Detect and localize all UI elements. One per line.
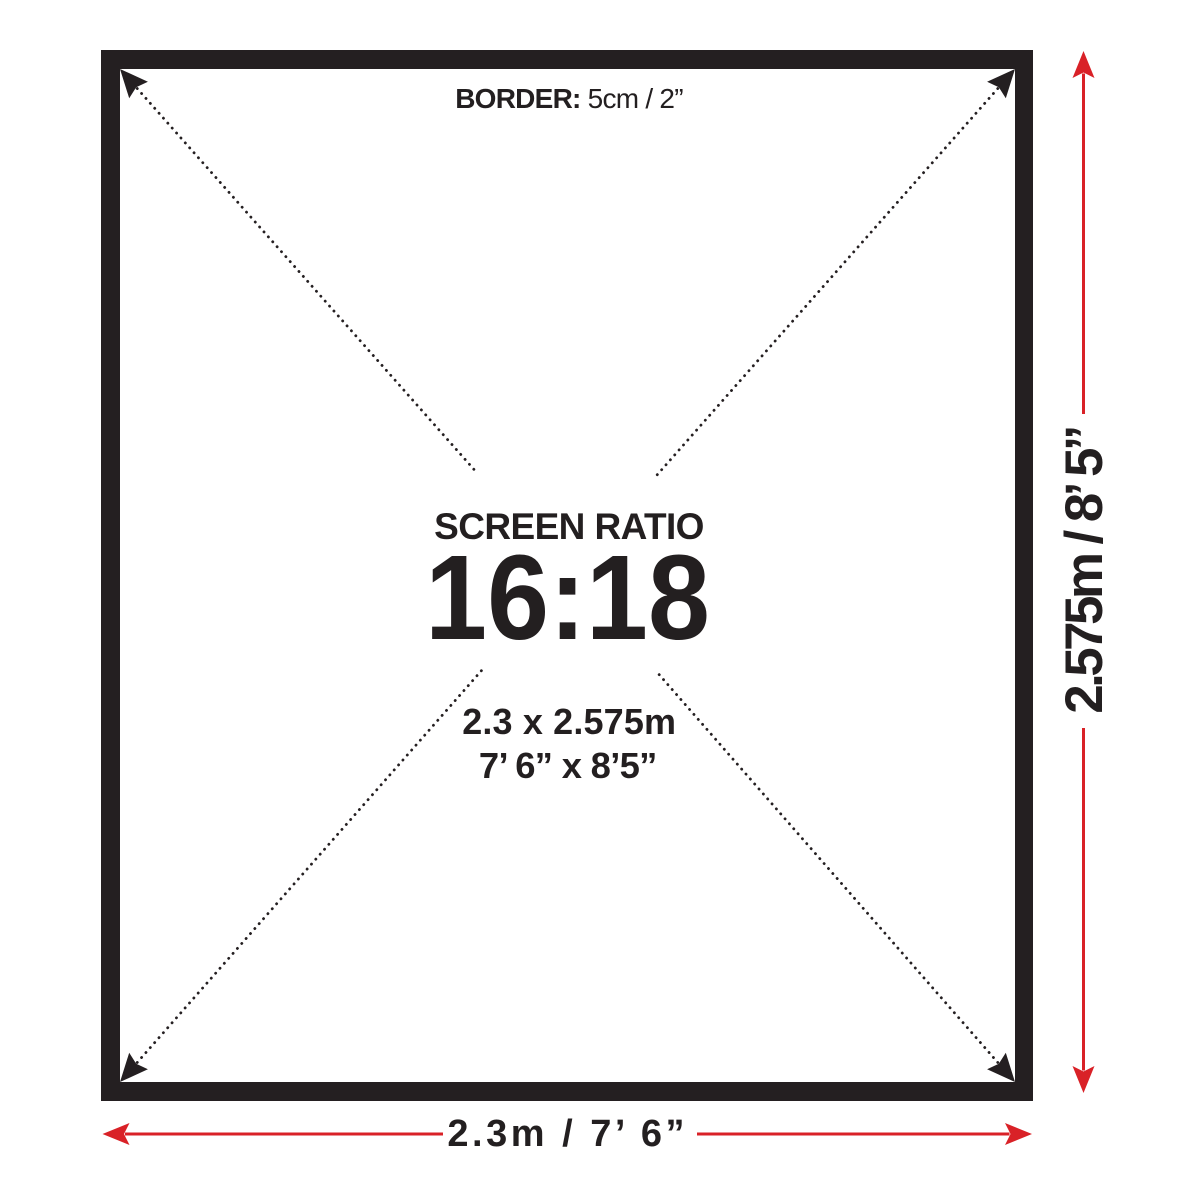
svg-text:2.575m / 8’ 5”: 2.575m / 8’ 5” bbox=[1055, 428, 1114, 714]
svg-text:2.3 x 2.575m: 2.3 x 2.575m bbox=[462, 701, 676, 742]
svg-text:16:18: 16:18 bbox=[425, 530, 710, 665]
svg-text:BORDER: 5cm / 2”: BORDER: 5cm / 2” bbox=[455, 83, 683, 114]
svg-text:7’ 6” x 8’5”: 7’ 6” x 8’5” bbox=[479, 745, 657, 786]
svg-text:2.3m / 7’ 6”: 2.3m / 7’ 6” bbox=[447, 1113, 688, 1155]
